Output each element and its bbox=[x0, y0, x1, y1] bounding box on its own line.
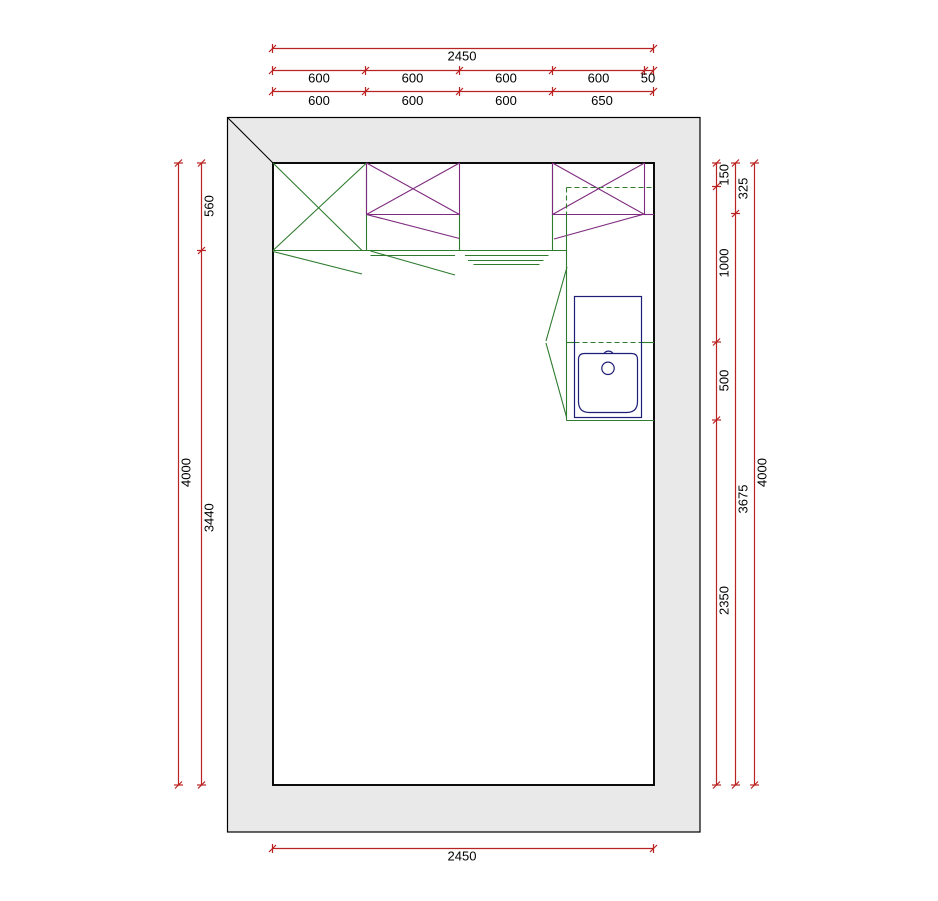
svg-text:150: 150 bbox=[717, 164, 732, 186]
svg-text:600: 600 bbox=[308, 71, 330, 86]
svg-text:4000: 4000 bbox=[179, 458, 194, 487]
svg-text:560: 560 bbox=[202, 195, 217, 217]
svg-text:600: 600 bbox=[308, 93, 330, 108]
svg-text:600: 600 bbox=[402, 71, 424, 86]
svg-text:1000: 1000 bbox=[717, 249, 732, 278]
svg-text:3675: 3675 bbox=[736, 485, 751, 514]
svg-text:4000: 4000 bbox=[755, 458, 770, 487]
svg-text:500: 500 bbox=[717, 370, 732, 392]
svg-text:600: 600 bbox=[495, 93, 517, 108]
svg-text:600: 600 bbox=[402, 93, 424, 108]
svg-text:650: 650 bbox=[591, 93, 613, 108]
svg-text:600: 600 bbox=[588, 71, 610, 86]
svg-text:50: 50 bbox=[641, 71, 655, 86]
svg-text:325: 325 bbox=[736, 178, 751, 200]
svg-text:600: 600 bbox=[495, 71, 517, 86]
svg-text:2450: 2450 bbox=[448, 848, 477, 863]
svg-text:2350: 2350 bbox=[717, 586, 732, 615]
svg-text:2450: 2450 bbox=[448, 48, 477, 63]
svg-text:3440: 3440 bbox=[202, 503, 217, 532]
